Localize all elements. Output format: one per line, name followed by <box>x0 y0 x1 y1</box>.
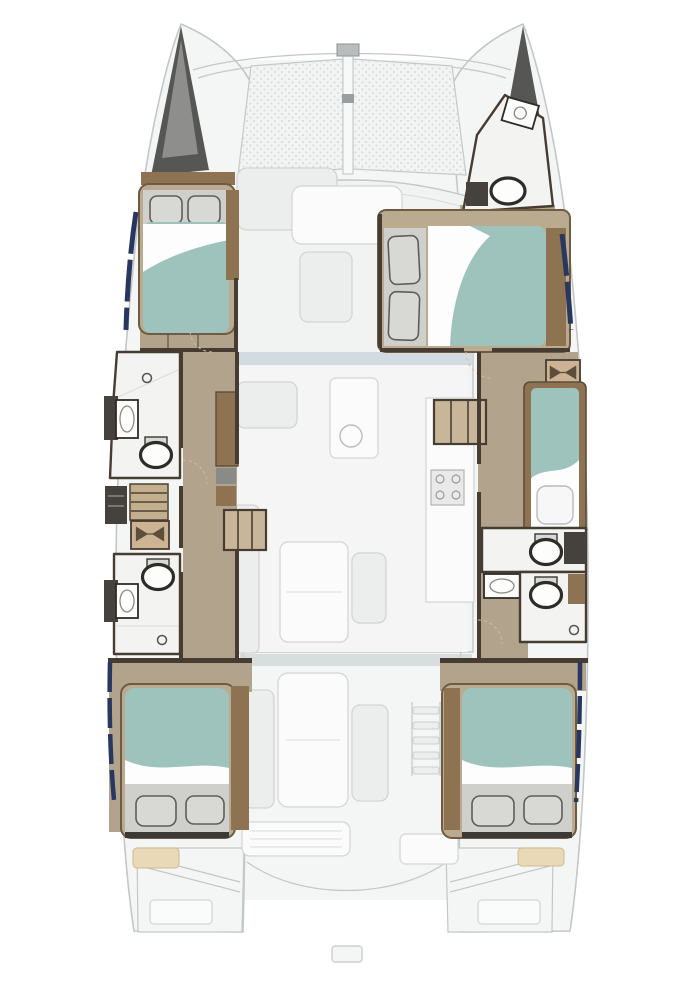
sliding-door-track[interactable] <box>240 654 472 666</box>
wall <box>492 348 570 352</box>
cabinet-dark <box>466 182 488 206</box>
wall <box>179 486 183 548</box>
pillow <box>524 796 562 824</box>
port-entry-steps[interactable] <box>224 510 266 550</box>
cockpit-bench-aft <box>242 822 350 856</box>
pillow <box>136 796 176 826</box>
toilet-icon <box>143 559 174 590</box>
saloon-bench <box>352 553 386 623</box>
starboard-aft-head <box>520 572 586 642</box>
wall <box>179 572 183 660</box>
pillow <box>472 796 514 826</box>
wall <box>235 352 239 464</box>
wall <box>235 550 239 662</box>
catamaran-floor-plan <box>0 0 690 992</box>
wall <box>440 658 588 663</box>
wall <box>380 348 464 352</box>
port-forward-head <box>104 352 180 478</box>
stern-tab <box>332 946 362 962</box>
toilet-icon <box>491 178 525 204</box>
wall <box>179 352 183 448</box>
trampoline-center-beam <box>343 56 353 174</box>
port-wardrobe <box>216 392 238 466</box>
lounge-table <box>300 252 352 322</box>
wall <box>108 658 252 663</box>
port-aft-step <box>133 848 179 868</box>
starboard-swim-step <box>478 900 540 924</box>
pillow <box>188 196 220 224</box>
corridor-box-wood <box>216 486 236 506</box>
starboard-forward-cabin <box>378 210 570 378</box>
pillow <box>537 486 573 524</box>
wall <box>234 278 238 352</box>
toilet-icon <box>141 437 172 468</box>
cabinet-dark <box>564 532 586 564</box>
stbd-aft-step <box>518 848 564 866</box>
utility-locker <box>105 486 127 524</box>
sink <box>116 584 138 618</box>
wall <box>477 352 481 464</box>
toilet-icon <box>531 577 562 608</box>
shelf-wood <box>568 574 585 604</box>
port-aft-side-trim <box>231 686 249 830</box>
port-aft-cabin <box>121 684 249 838</box>
saloon-seat-forward <box>237 382 297 428</box>
pillow <box>388 291 420 340</box>
bed-base <box>462 832 572 838</box>
hull-stairs[interactable] <box>130 484 168 520</box>
pillow <box>388 235 420 285</box>
anchor-roller <box>342 94 354 103</box>
galley-sink <box>340 425 362 447</box>
port-forward-cabin <box>139 184 239 352</box>
stove <box>431 470 464 505</box>
stbd-aft-side-trim <box>444 688 460 830</box>
port-aft-head <box>104 554 180 654</box>
wall <box>477 492 481 662</box>
starboard-aft-cabin <box>442 684 576 838</box>
bed-base <box>125 832 229 838</box>
port-vanity-seat <box>131 521 169 549</box>
starboard-single-berth <box>524 382 586 534</box>
bowsprit-fitting <box>337 44 359 56</box>
pillow <box>186 796 224 824</box>
toilet-icon <box>531 534 562 565</box>
floor-plan-canvas <box>0 0 690 992</box>
port-companionway <box>105 484 169 549</box>
port-swim-step <box>150 900 212 924</box>
cockpit-seat-right <box>352 705 388 801</box>
wall <box>378 214 382 348</box>
port-fwd-side-trim <box>226 190 239 280</box>
pillow <box>150 196 182 224</box>
saloon-windshield <box>232 352 474 365</box>
corridor-box <box>216 468 236 484</box>
